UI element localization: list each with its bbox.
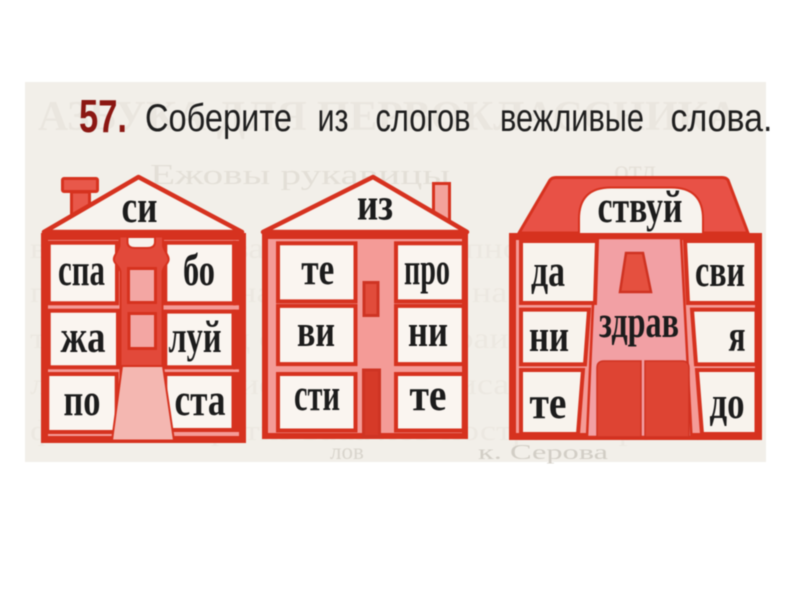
svg-text:ствуй: ствуй: [598, 182, 683, 232]
svg-text:слогов: слогов: [376, 97, 471, 140]
svg-text:57.: 57.: [79, 90, 127, 142]
svg-text:те: те: [530, 378, 567, 428]
svg-text:из: из: [357, 180, 393, 230]
svg-text:сви: сви: [695, 246, 745, 296]
svg-text:ви: ви: [297, 306, 335, 356]
svg-text:про: про: [404, 244, 450, 294]
svg-text:жа: жа: [61, 312, 106, 362]
svg-text:по: по: [64, 375, 101, 425]
svg-text:ста: ста: [175, 375, 226, 425]
svg-text:ни: ни: [529, 311, 569, 361]
svg-text:вежливые: вежливые: [500, 97, 644, 140]
svg-text:сти: сти: [294, 370, 340, 420]
svg-text:те: те: [301, 244, 334, 294]
svg-text:бо: бо: [183, 245, 215, 295]
svg-text:лов: лов: [330, 439, 364, 464]
svg-text:слова.: слова.: [671, 97, 773, 140]
svg-text:ни: ни: [408, 306, 448, 356]
svg-text:те: те: [410, 370, 447, 420]
svg-text:к. Серова: к. Серова: [478, 440, 609, 464]
svg-text:да: да: [531, 246, 565, 296]
svg-text:Ежовы рукавицы: Ежовы рукавицы: [150, 159, 450, 191]
svg-text:до: до: [710, 378, 745, 428]
svg-text:спа: спа: [58, 245, 105, 295]
svg-text:я: я: [729, 311, 746, 361]
svg-text:луй: луй: [169, 312, 222, 362]
svg-text:Соберите: Соберите: [145, 97, 292, 140]
svg-text:здрав: здрав: [599, 297, 679, 347]
svg-text:си: си: [122, 182, 158, 232]
svg-text:из: из: [318, 97, 349, 140]
